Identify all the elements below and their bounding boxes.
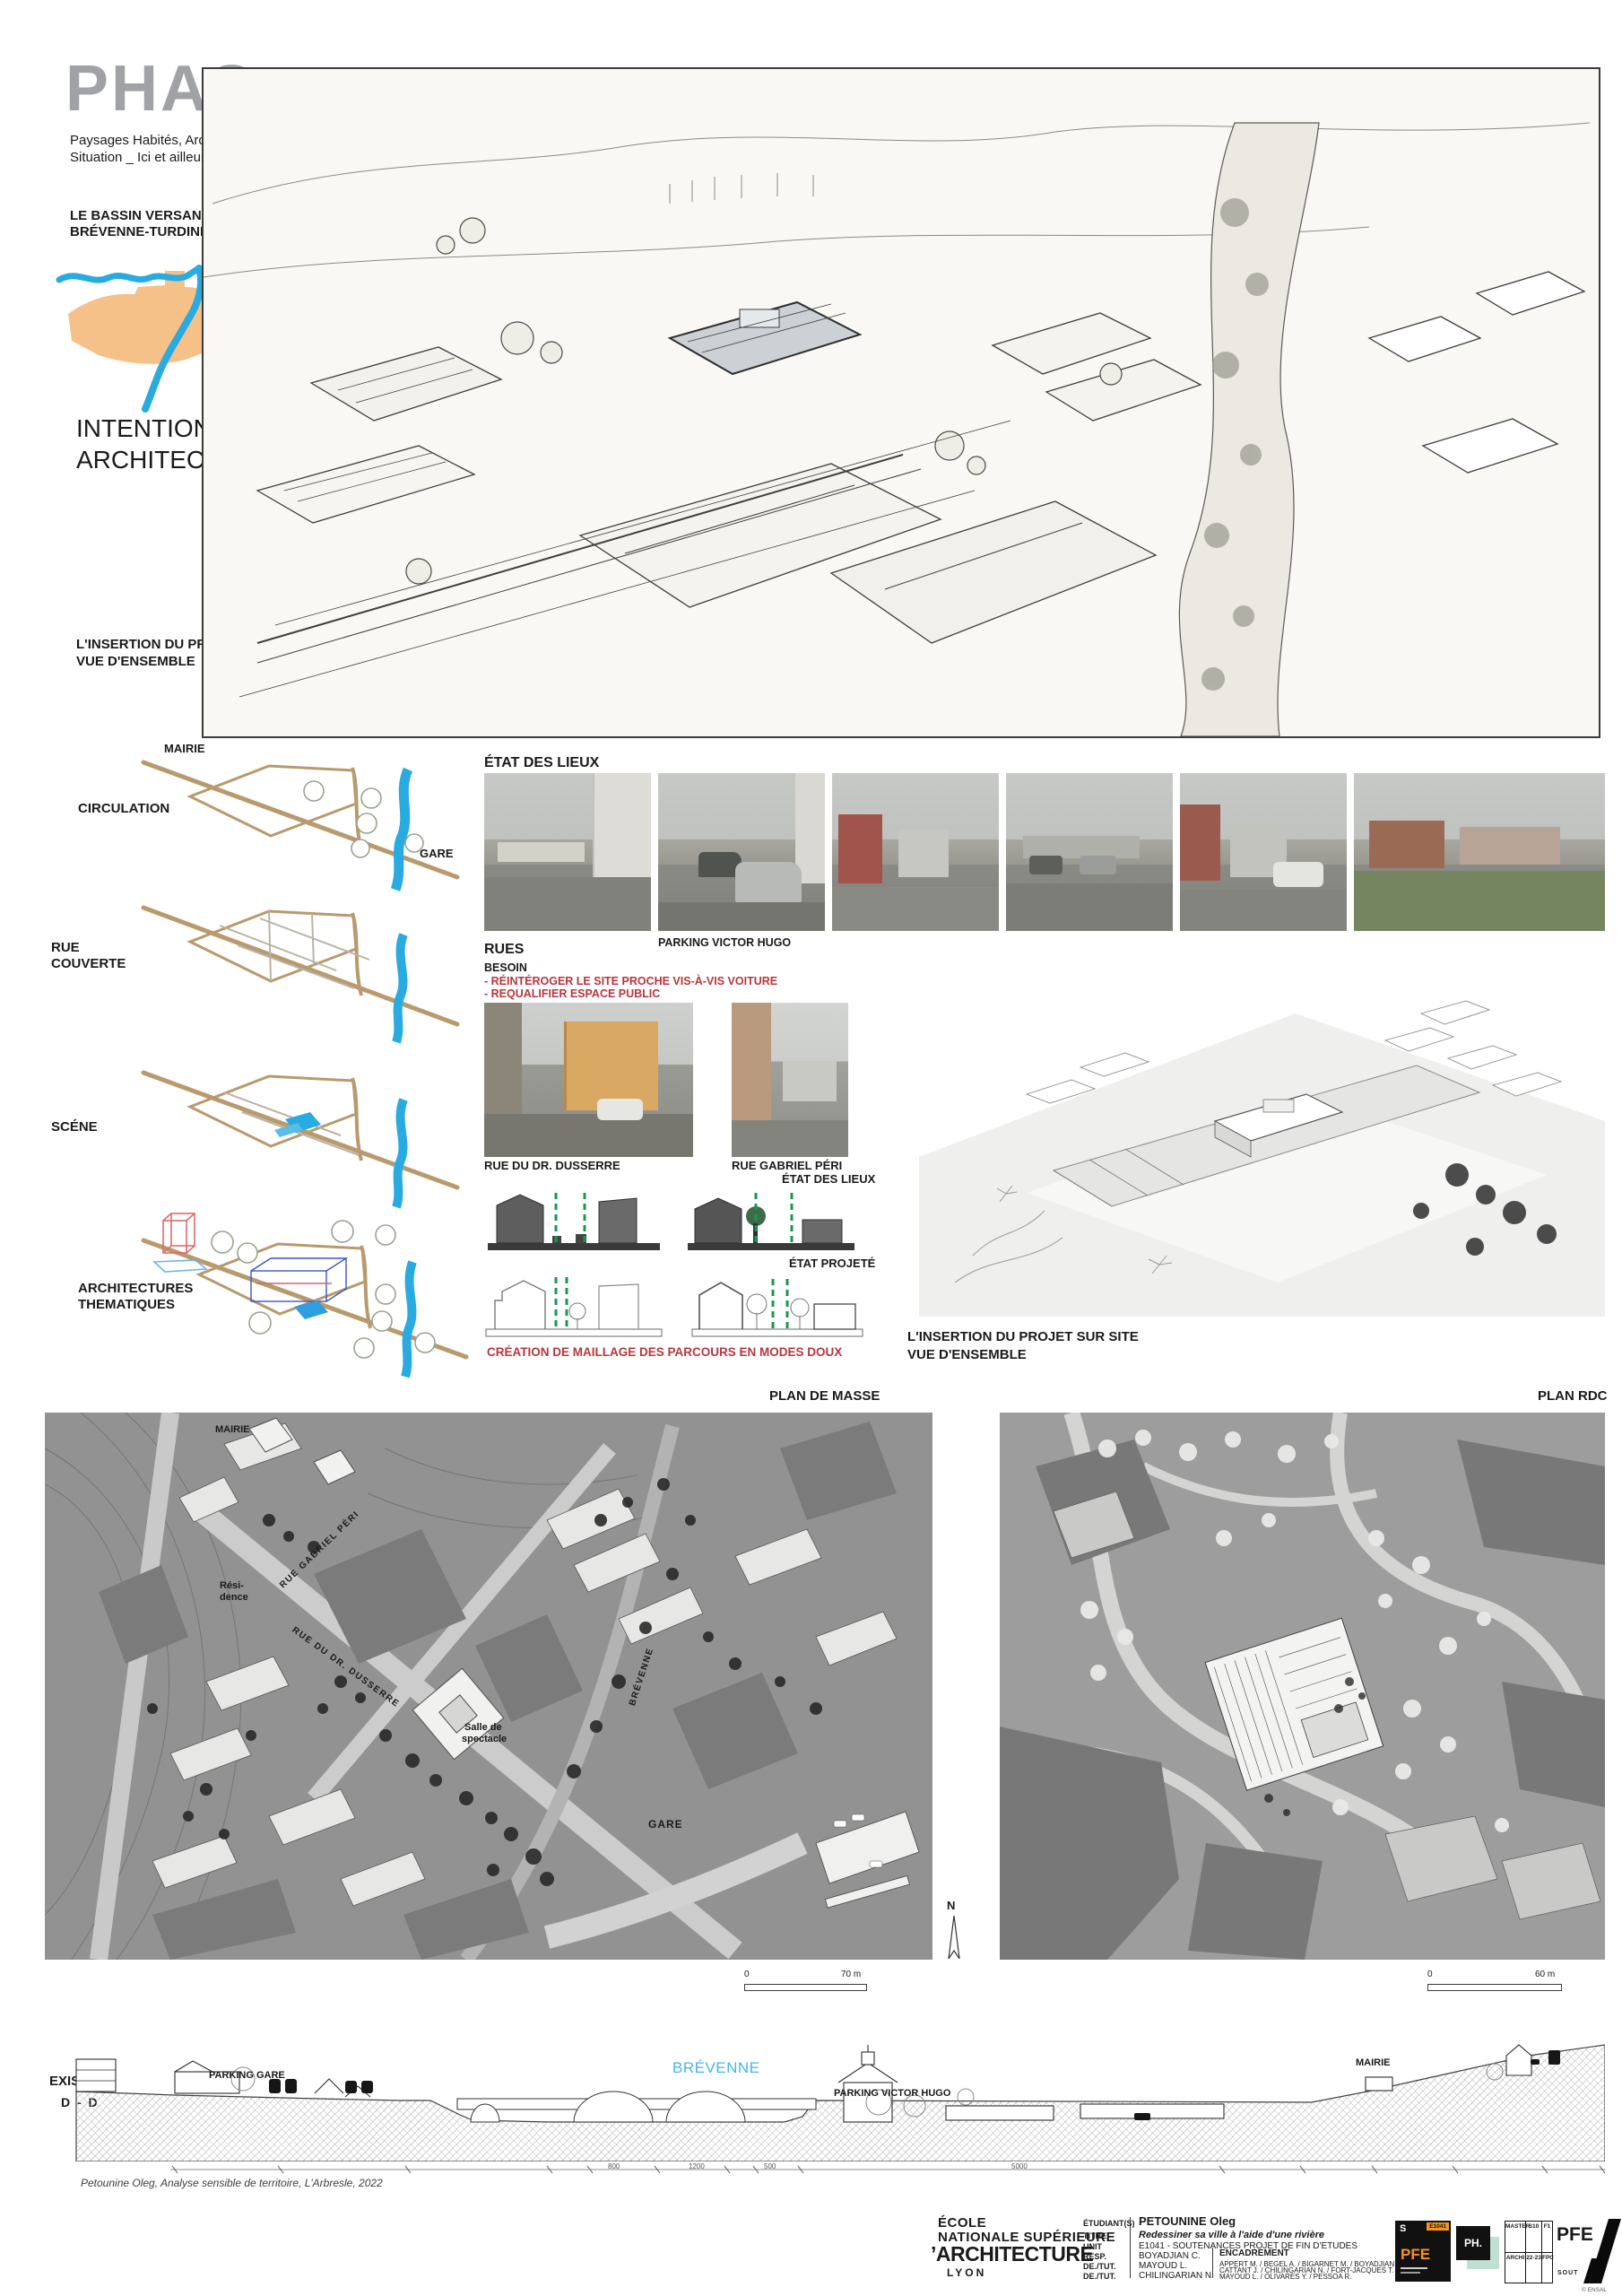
photo-site-3 [832,773,999,931]
etat-projete-label: ÉTAT PROJETÉ [789,1257,875,1271]
diagram-rue-couverte [134,899,466,1047]
plan-salle-label-1: Salle de [464,1722,502,1734]
existant-section-drawing [49,2034,1605,2161]
badge-s-label: S [1400,2223,1406,2235]
presentation-board: PHAS Paysages Habités, Architectures en … [0,0,1622,2296]
school-name-4: LYON [947,2267,986,2280]
photo-site-4 [1006,773,1173,931]
besoin-title: BESOIN [484,961,527,974]
diagram-label-scene: SCÉNE [51,1119,98,1135]
diagram-label-rue-2: COUVERTE [51,956,126,971]
rue-peri-caption: RUE GABRIEL PÉRI [732,1160,842,1173]
footer-divider-2 [1212,2248,1213,2278]
diagram-label-rue-1: RUE [51,940,80,955]
photo-site-1 [484,773,651,931]
etat-des-lieux-title: ÉTAT DES LIEUX [484,755,599,771]
unit-label: UNIT [1083,2242,1102,2251]
section-sketch-existing-right [686,1189,856,1257]
scale-left-zero: 0 [744,1970,750,1980]
photo-site-5 [1180,773,1347,931]
creation-maillage-text: CRÉATION DE MAILLAGE DES PARCOURS EN MOD… [487,1345,842,1360]
section-sketch-existing-left [484,1186,664,1257]
section-sketch-proposed-left [484,1272,664,1344]
scale-left-max: 70 m [841,1970,861,1980]
section-brevenne-label: BRÉVENNE [672,2059,760,2077]
pfe-soutenance-badge: S E1041 PFE [1395,2221,1451,2282]
school-name-1: ÉCOLE [938,2215,986,2231]
photo-rue-peri [732,1003,848,1157]
dim-5000: 5000 [1011,2162,1028,2170]
plan-rdc-title: PLAN RDC [1538,1388,1608,1404]
plan-rdc [1000,1413,1605,1960]
plan-residence-label-1: Rési- [220,1580,244,1592]
badge-e1041-chip: E1041 [1427,2222,1449,2231]
credit-text: Petounine Oleg, Analyse sensible de terr… [81,2178,383,2190]
bassin-title-2: BRÉVENNE-TURDINE [70,224,209,239]
insertion-caption-2: VUE D'ENSEMBLE [76,654,195,669]
section-dimension-line [170,2163,1605,2176]
sout-label: SOUT [1557,2270,1578,2277]
intention-title-1: INTENTION [76,414,212,443]
dim-1200: 1200 [689,2162,705,2170]
ensal-slash-logo [1583,2219,1621,2283]
besoin-item-1: - RÉINTÉROGER LE SITE PROCHE VIS-À-VIS V… [484,975,777,987]
badge-pfe-label: PFE [1401,2246,1430,2264]
titre-label: TITRE [1083,2231,1106,2240]
badge-decor-bar-2 [1401,2272,1420,2274]
tut2-value: CHILINGARIAN N. [1139,2271,1214,2282]
badge-decor-bar-1 [1401,2267,1427,2269]
section-mairie-label: MAIRIE [1356,2057,1391,2069]
tut1-label: DE./TUT. [1083,2262,1116,2271]
footer-divider-1 [1130,2217,1131,2278]
table-2223: 22-23 [1526,2253,1541,2283]
axonometric-view [919,987,1605,1317]
plan-de-masse [45,1413,932,1960]
tut1-value: MAYOUD L. [1139,2261,1187,2272]
dim-500: 500 [764,2162,776,2170]
scale-bar-left [744,1984,867,1991]
plan-salle-label-2: spectacle [462,1734,507,1745]
scale-right-max: 60 m [1535,1970,1555,1980]
table-s10: S10 [1526,2222,1541,2253]
resp-value: BOYADJIAN C. [1139,2251,1201,2262]
ph-badge: PH. [1456,2226,1499,2269]
plan-de-masse-title: PLAN DE MASSE [769,1388,880,1404]
table-master: MASTER [1505,2222,1525,2253]
dim-800: 800 [608,2162,620,2170]
master-archi-table: MASTER ARCHI S10 22-23 F1 FPC [1505,2221,1553,2283]
photo-site-6 [1354,773,1605,931]
plan-gare-label: GARE [648,1819,683,1831]
diagram-scene [134,1065,466,1209]
titre-value: Redessiner sa ville à l'aide d'une riviè… [1139,2230,1324,2241]
section-parking-victor-hugo-label: PARKING VICTOR HUGO [834,2088,950,2100]
photo-rue-dusserre [484,1003,693,1157]
rue-dusserre-caption: RUE DU DR. DUSSERRE [484,1160,620,1173]
etudiant-value: PETOUNINE Oleg [1139,2215,1236,2229]
parking-victor-hugo-caption: PARKING VICTOR HUGO [658,936,791,949]
diagram-architectures [117,1206,475,1381]
bassin-title-1: LE BASSIN VERSANT [70,208,210,223]
besoin-item-2: - REQUALIFIER ESPACE PUBLIC [484,987,660,1000]
ensal-copyright: © ENSAL [1582,2287,1607,2293]
encadrement-label: ENCADREMENT [1219,2248,1289,2259]
scale-bar-right [1427,1984,1562,1991]
north-arrow-icon [947,1916,961,1959]
photo-site-2 [658,773,825,931]
tut2-label: DE./TUT. [1083,2272,1116,2281]
plan-residence-label-2: dence [220,1592,248,1604]
section-parking-gare-label: PARKING GARE [209,2070,285,2082]
table-f1: F1 [1542,2222,1552,2253]
axon-caption-1: L'INSERTION DU PROJET SUR SITE [907,1329,1139,1344]
etat-des-lieux-small-label: ÉTAT DES LIEUX [782,1173,875,1187]
diagram-circulation [134,753,466,897]
school-name-3: ’ARCHITECTURE [931,2242,1093,2266]
scale-right-zero: 0 [1427,1970,1433,1980]
resp-label: RESP. [1083,2252,1106,2261]
ph-badge-label: PH. [1456,2226,1490,2260]
etudiant-label: ÉTUDIANT(S) [1083,2219,1135,2228]
encadrement-line-3: MAYOUD L. / OLIVARES Y. / PESSOA R. [1219,2273,1351,2281]
section-sketch-proposed-right [690,1272,865,1344]
north-label: N [947,1900,955,1913]
plan-mairie-label: MAIRIE [215,1424,250,1436]
table-fpc: FPC [1542,2253,1552,2283]
table-archi: ARCHI [1505,2253,1525,2283]
axon-caption-2: VUE D'ENSEMBLE [907,1347,1027,1362]
site-perspective-sketch [202,67,1600,738]
rues-label: RUES [484,942,524,958]
